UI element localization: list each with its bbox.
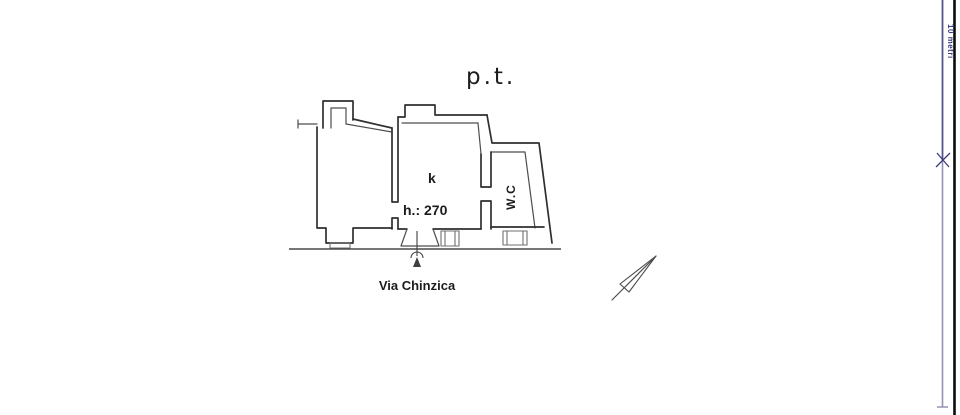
- adjacent-wall-stub: [298, 120, 317, 128]
- internal-wall-with-door: [392, 117, 398, 229]
- floor-plan-drawing: p.t. k h.: 270 W.C Via Chinzica 10 metri: [0, 0, 960, 415]
- room-k-label: k: [428, 170, 436, 186]
- street-name-label: Via Chinzica: [379, 278, 456, 293]
- north-arrow-icon: [612, 256, 656, 300]
- cadastral-plan-sheet: p.t. k h.: 270 W.C Via Chinzica 10 metri: [0, 0, 960, 415]
- wc-label: W.C: [504, 184, 518, 210]
- margin-scale-bar: [936, 0, 950, 407]
- room-height-label: h.: 270: [403, 202, 448, 218]
- room-k-walls: [398, 105, 552, 246]
- left-room-walls: [317, 101, 392, 248]
- floor-level-label: p.t.: [466, 64, 516, 90]
- scale-label: 10 metri: [946, 24, 955, 59]
